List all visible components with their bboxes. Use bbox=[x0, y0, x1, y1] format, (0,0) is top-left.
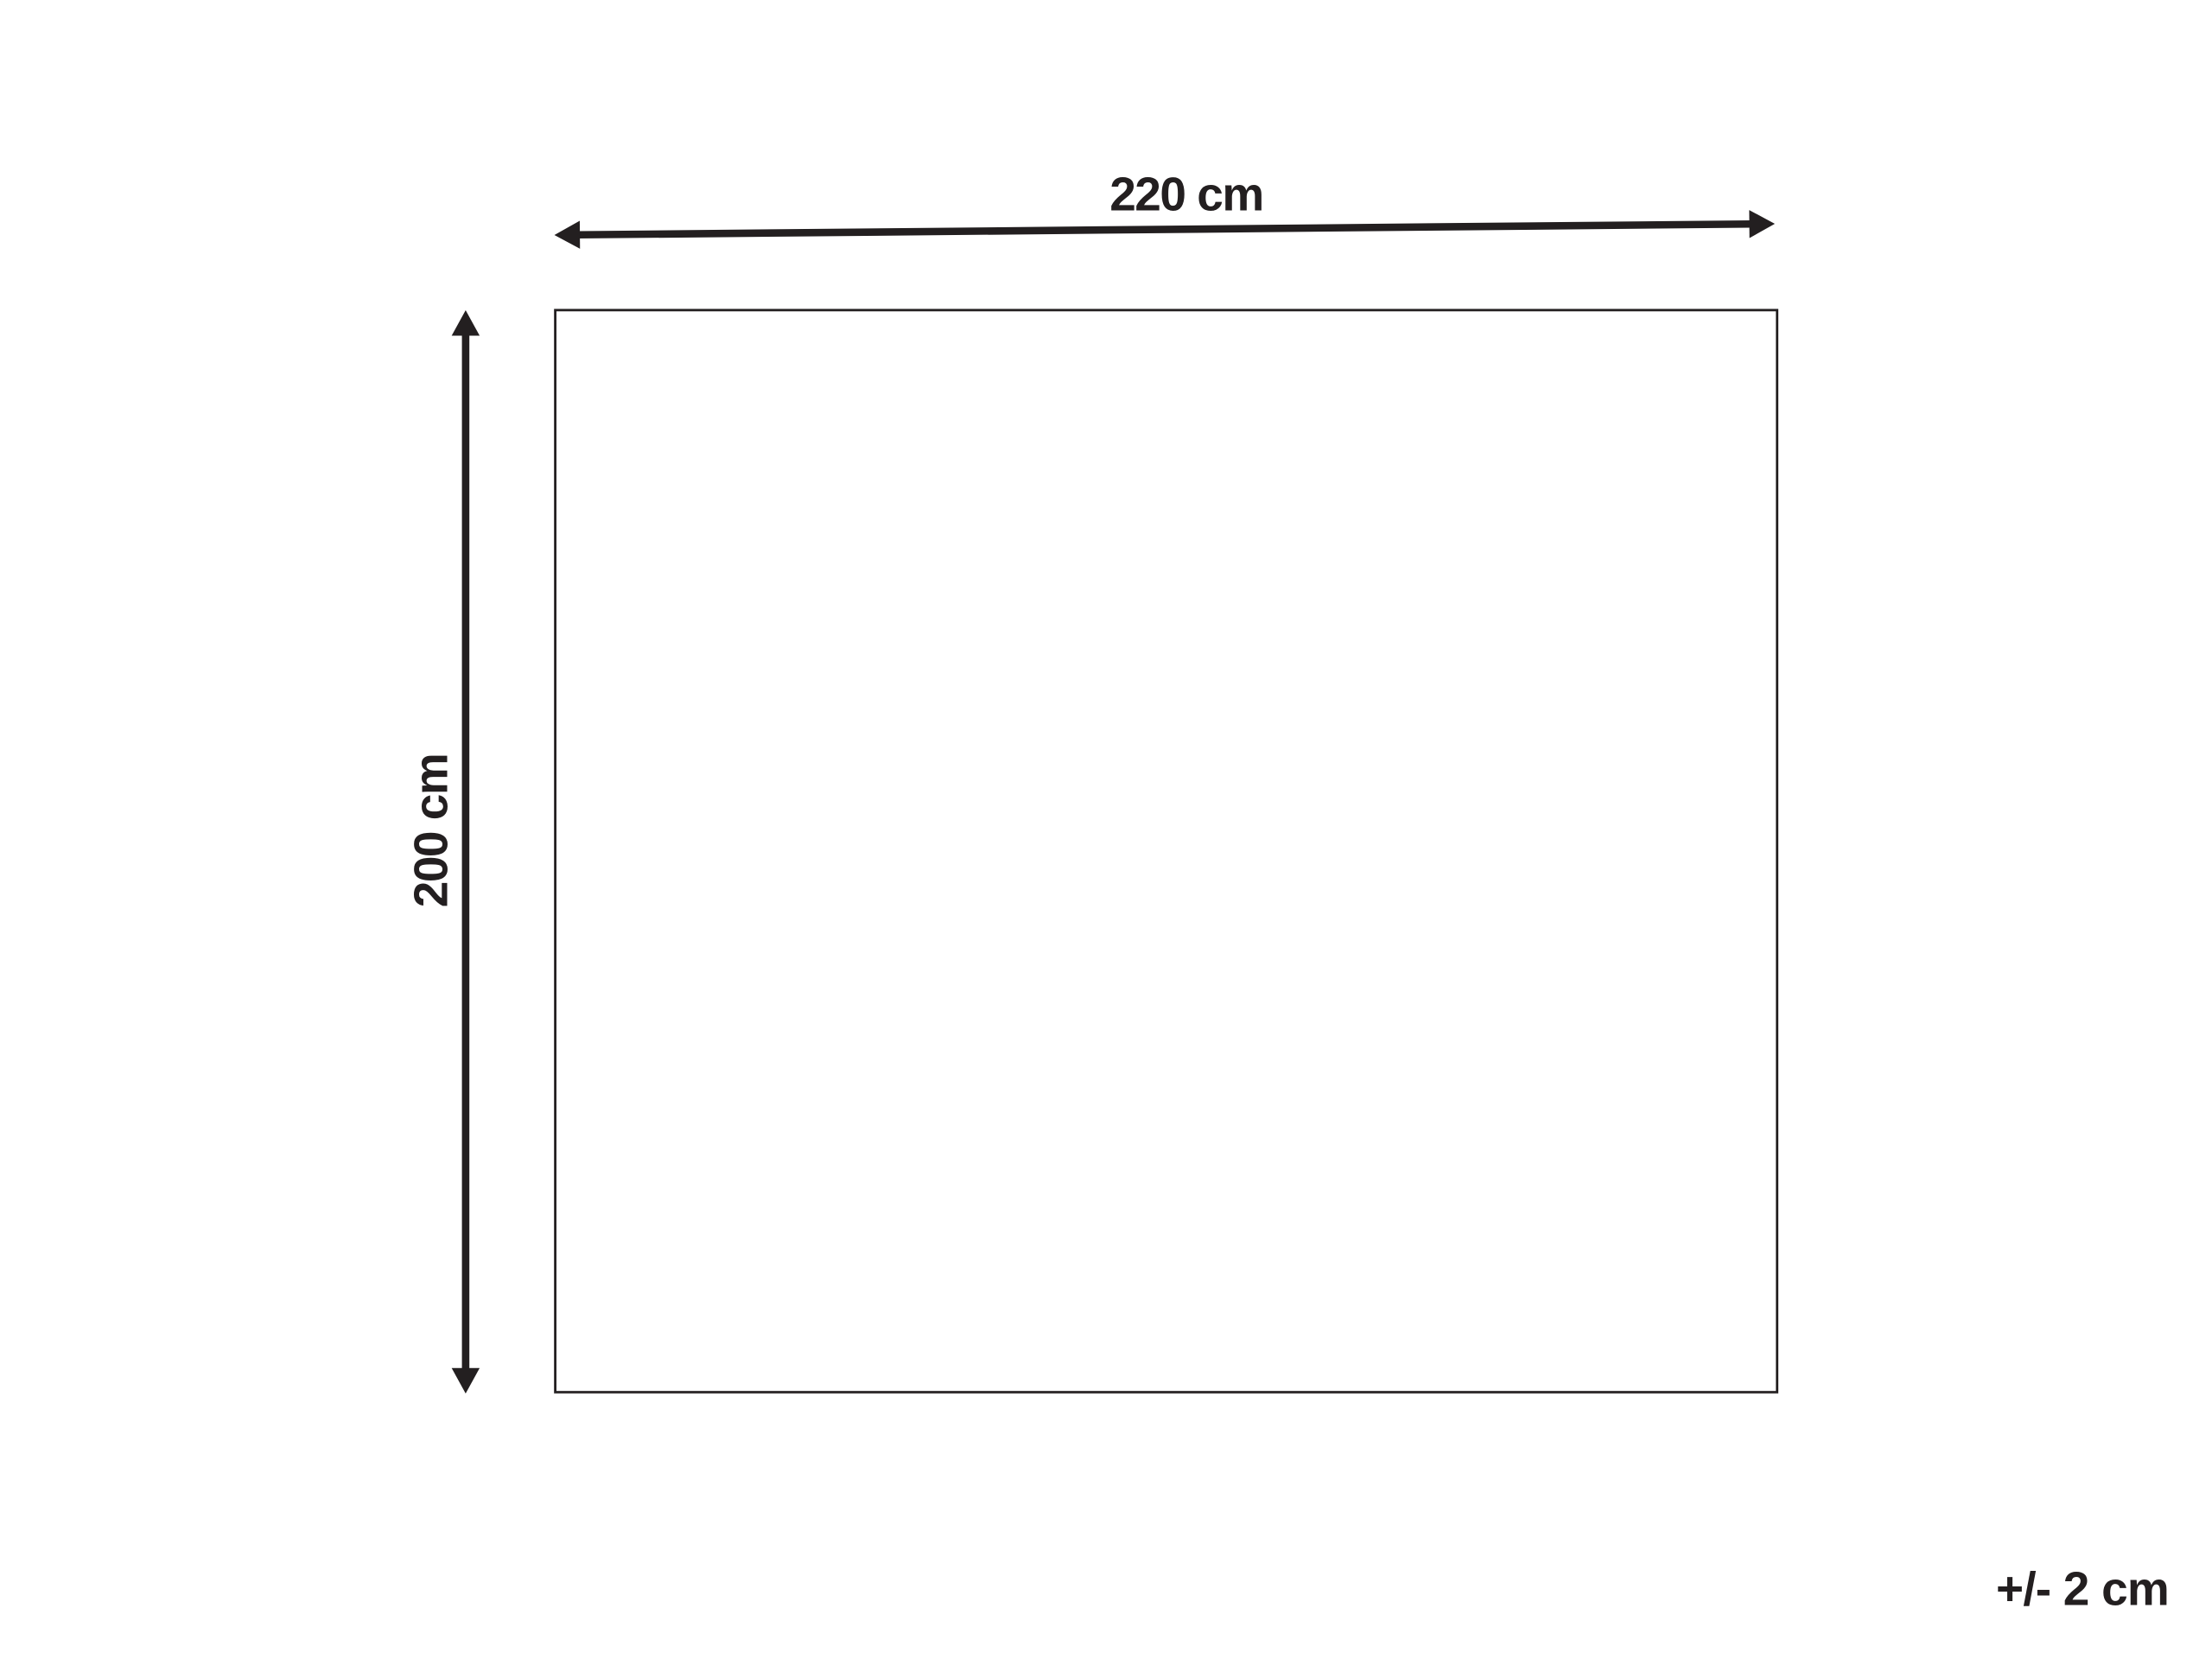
svg-text:220 cm: 220 cm bbox=[1109, 168, 1263, 221]
svg-text:+/- 2 cm: +/- 2 cm bbox=[1996, 1561, 2169, 1615]
svg-text:200 cm: 200 cm bbox=[404, 754, 458, 908]
